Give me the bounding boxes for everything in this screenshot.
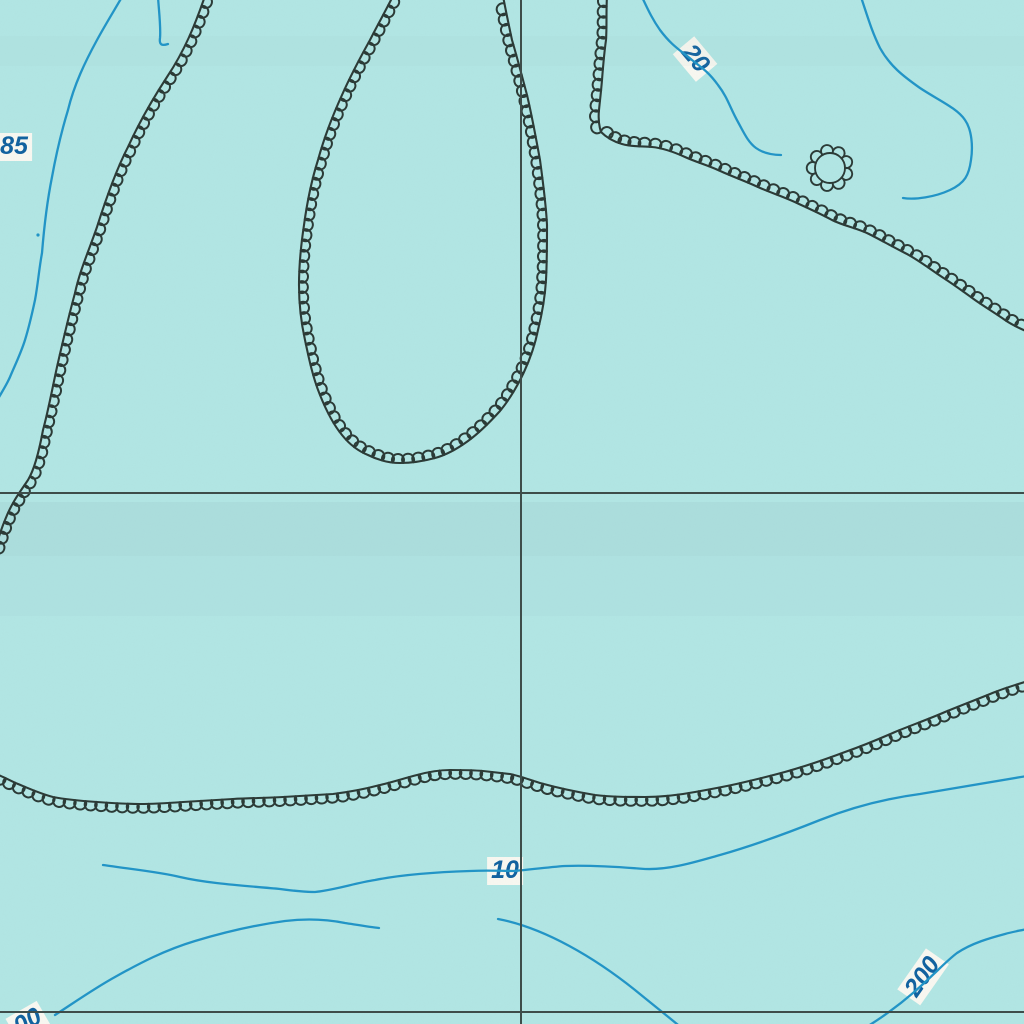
grid-line-horizontal-1-overlay [0,492,1024,494]
blue-speck [36,233,39,236]
grid-line-vertical-overlay [520,0,522,1024]
map-canvas [0,0,1024,1024]
scan-shade-band-2 [0,556,1024,616]
grid-line-horizontal-2-overlay [0,1011,1024,1013]
scan-shade-band-1 [0,502,1024,556]
map-viewport: 85 20 10 200 00 [0,0,1024,1024]
